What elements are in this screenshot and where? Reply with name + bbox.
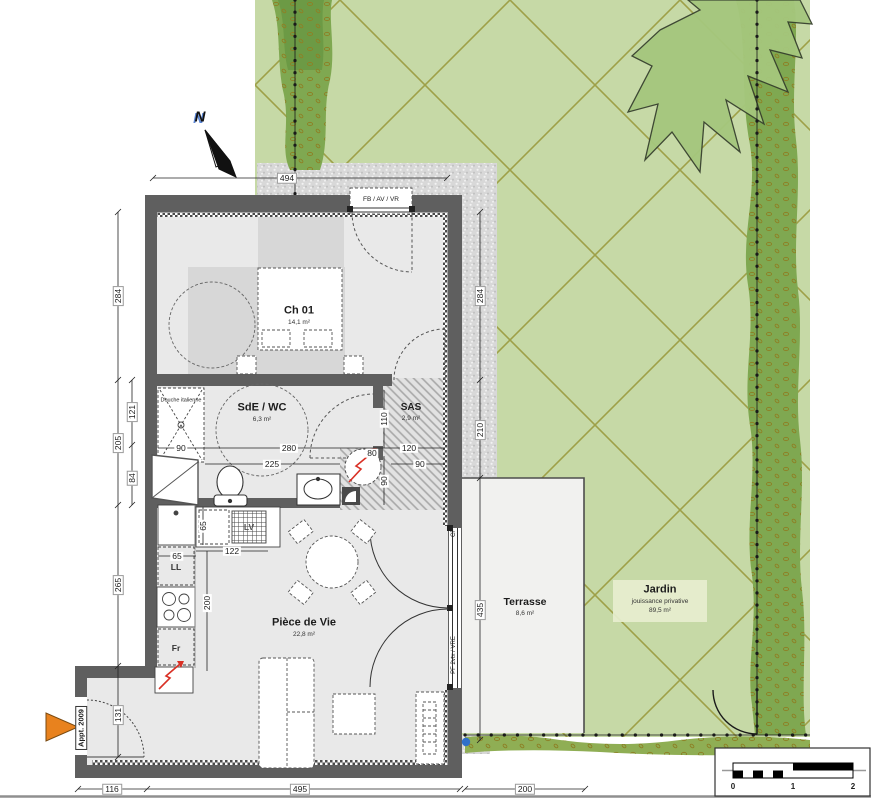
- scale-1: 1: [791, 783, 795, 791]
- dim-left-265: 265: [113, 575, 124, 595]
- washer-label: LL: [171, 563, 181, 572]
- drain-unit: [342, 487, 360, 505]
- dim-ce-80: 80: [365, 449, 378, 458]
- fridge-label: Fr: [172, 644, 181, 653]
- dim-sas-110: 110: [380, 410, 389, 428]
- window-cf-label: CF: [451, 529, 457, 537]
- room-ch01-name: Ch 01: [284, 306, 314, 317]
- dim-top: 494: [277, 173, 297, 184]
- dim-kitchen-200: 200: [203, 594, 212, 612]
- apartment-tag: Appt. 2009: [75, 706, 87, 750]
- plan-drawing: [0, 0, 871, 800]
- technical-shaft: [152, 455, 198, 505]
- dim-shower-90: 90: [174, 444, 187, 453]
- room-sas-name: SAS: [401, 403, 422, 413]
- room-vie-area: 22,8 m²: [293, 632, 315, 639]
- window-pf-label: PF 2vtx / VRE: [451, 636, 457, 674]
- floor-plan: N 494 284 205 121 84 265 131 116 495 200…: [0, 0, 871, 800]
- room-sde-name: SdE / WC: [238, 403, 287, 414]
- dim-pass-90: 90: [413, 460, 426, 469]
- north-arrow: [205, 130, 236, 177]
- room-vie-name: Pièce de Vie: [272, 618, 336, 629]
- scale-0: 0: [731, 783, 735, 791]
- dim-left-121: 121: [127, 402, 138, 422]
- dim-left-284: 284: [113, 286, 124, 306]
- dim-right-210: 210: [475, 420, 486, 440]
- entrance-arrow: [46, 713, 78, 741]
- dim-kitchen-65v: 65: [199, 519, 208, 532]
- sink-vanity: [297, 474, 340, 505]
- scale-2: 2: [851, 783, 855, 791]
- dim-left-84: 84: [127, 470, 138, 485]
- utility-marker: [462, 738, 470, 746]
- dim-bottom-116: 116: [102, 784, 122, 795]
- room-ch01-area: 14,1 m²: [288, 320, 310, 327]
- dim-left-205: 205: [113, 433, 124, 453]
- dim-sas-120: 120: [400, 444, 418, 453]
- dim-right-435: 435: [475, 600, 486, 620]
- room-terrasse-name: Terrasse: [503, 597, 546, 608]
- room-sas-area: 2,9 m²: [402, 416, 420, 423]
- dim-pass-90b: 90: [380, 474, 389, 487]
- dim-sde-225: 225: [263, 460, 281, 469]
- room-terrasse-area: 8,6 m²: [516, 611, 534, 618]
- room-jardin-area: 89,5 m²: [649, 608, 671, 615]
- room-jardin-name: Jardin: [643, 585, 676, 596]
- room-sde-area: 6,3 m²: [253, 417, 271, 424]
- north-label: N: [195, 110, 206, 125]
- shower-label: Douche italienne: [161, 398, 202, 404]
- dim-left-131: 131: [113, 705, 124, 725]
- room-jardin-subtitle: jouissance privative: [632, 599, 689, 606]
- window-top-label: FB / AV / VR: [363, 197, 399, 204]
- dishwasher-label: LV: [244, 523, 254, 532]
- dim-kitchen-122: 122: [223, 547, 241, 556]
- dim-right-284: 284: [475, 286, 486, 306]
- dim-sde-280: 280: [280, 444, 298, 453]
- dim-bottom-200: 200: [515, 784, 535, 795]
- dim-bottom-495: 495: [290, 784, 310, 795]
- dim-kitchen-65h: 65: [170, 552, 183, 561]
